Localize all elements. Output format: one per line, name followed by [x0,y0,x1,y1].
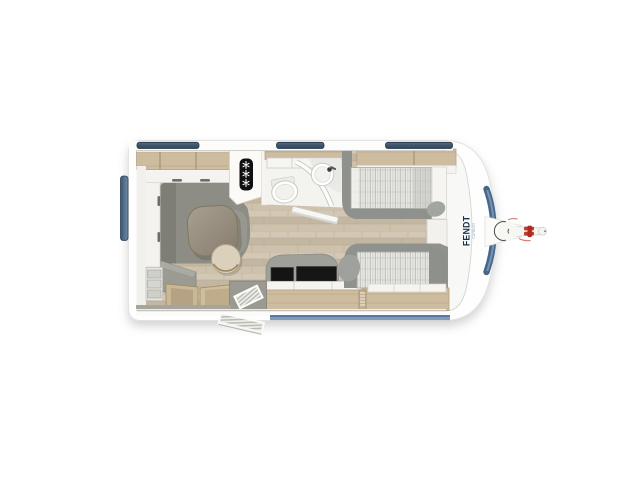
svg-text:Caravan: Caravan [471,222,476,238]
svg-text:FENDT: FENDT [462,215,472,246]
